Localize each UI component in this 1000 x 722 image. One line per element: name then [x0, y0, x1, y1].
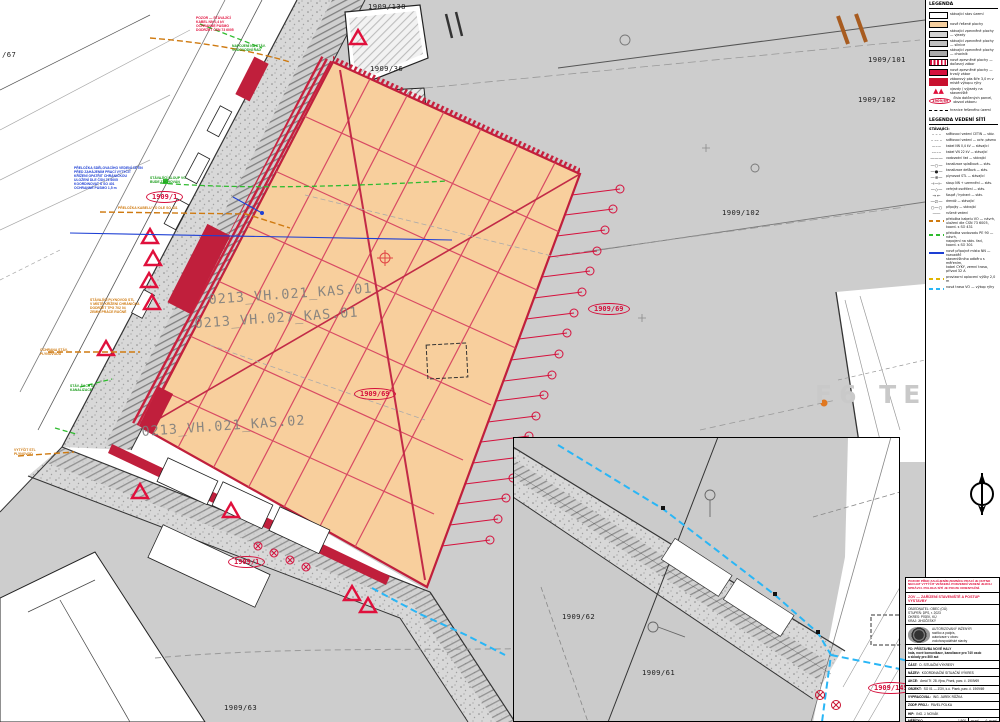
parcel-label: 1909/102: [722, 208, 760, 217]
legend-item: stávající zpevněné plochy — silnice: [929, 40, 998, 48]
annotation-orange: PŘELOŽKA KABELU VO DLE SO 431: [118, 206, 194, 210]
legend-item: nové zpevněné plochy — trvalý zábor: [929, 69, 998, 77]
title-red-heading: ZOV — ZAŘÍZENÍ STAVENIŠTĚ A POSTUP VÝSTA…: [906, 593, 999, 605]
north-arrow-icon: [957, 467, 1000, 522]
utility-row: – –– –sdělovací vedení — ochr. pásmo: [929, 138, 998, 143]
utilities-sub: STÁVAJÍCÍ:: [929, 127, 998, 131]
annotation-red: POZOR — STÁVAJÍCÍ KABEL NN 0,4 kV OCHRAN…: [196, 16, 260, 32]
inset-detail-view: [513, 437, 900, 722]
legend-item: záborový pás šíře 3,0 m v místě výkopu r…: [929, 78, 998, 86]
yellow-dash-line: [929, 278, 944, 280]
drawing-number-cell: PARÉČ. PARÉ C03: [968, 718, 999, 722]
legend-item: hranice řešeného území: [929, 107, 998, 115]
swatch-existing: [929, 12, 948, 19]
utility-row: ———vodovodní řad — stávající: [929, 156, 998, 161]
parcel-oval-label: 1909/1: [146, 191, 183, 203]
orange-dash-line: [929, 220, 944, 222]
legend-title: LEGENDA: [929, 2, 998, 9]
swatch-paved-3: [929, 50, 948, 57]
annotation-orange: STÁVAJÍCÍ PLYNOVOD STL V MÍSTĚ KŘÍŽENÍ C…: [90, 298, 182, 314]
object-description: PD: PŘÍSTAVBA NOVÉ HALY hala, nové komun…: [906, 645, 999, 661]
boundary-dash-icon: [929, 110, 948, 111]
triangles-icon: ▲▲: [929, 88, 948, 95]
legend-item: stávající zpevněné plochy — chodník: [929, 49, 998, 57]
meta-table: MĚŘÍTKO1:500 DATUM10/2023 FORMÁT8×A4 Č. …: [906, 718, 999, 722]
swatch-paved-2: [929, 40, 948, 47]
legend-item: stávající stav území: [929, 11, 998, 19]
utility-row: – – –sdělovací vedení CETIN — stáv.: [929, 132, 998, 137]
legend-colored-row: nová trasa VO — výkop rýhy: [929, 286, 998, 290]
green-dash-line: [929, 234, 944, 236]
utility-row: —⊕—plynovod STL — stávající: [929, 175, 998, 180]
cyan-dash-line: [929, 288, 944, 290]
parcel-label: 1909/63: [224, 703, 257, 712]
legend-item: nově řešené plochy: [929, 21, 998, 29]
swatch-temp-zabor: [929, 59, 948, 66]
legend-colored-row: nové přípojné místo NN — rozvaděč staven…: [929, 250, 998, 273]
oval-sample: 1909/69: [929, 98, 951, 104]
utility-row: —○—kanalizace splašková — stáv.: [929, 163, 998, 168]
utility-row: —●—kanalizace dešťová — stáv.: [929, 169, 998, 174]
meta-row: MĚŘÍTKO1:500: [906, 718, 968, 722]
tb-row: NÁZEV:KOORDINAČNÍ SITUAČNÍ VÝKRES: [906, 669, 999, 677]
utilities-legend-title: LEGENDA VEDENÍ SÍTÍ: [929, 118, 998, 125]
tb-row: VYPRACOVAL:ING. JAREK RŮŽKA: [906, 694, 999, 702]
legend-colored-row: přeložka vodovodu PE 90 — návrh, napojen…: [929, 232, 998, 248]
utility-row: ⊣—⊢sloup NN + uzemnění — stáv.: [929, 181, 998, 186]
tb-row: OBJEKT:SO 01 — ZOV, k.ú. Písek, parc. č.…: [906, 686, 999, 694]
stamp-section: AUTORIZOVANÝ INŽENÝR razítko a podpis, a…: [906, 625, 999, 645]
parcel-oval-label: 1909/1: [228, 556, 265, 568]
title-block: POZOR! PŘED ZAHÁJENÍM ZEMNÍCH PRACÍ JE N…: [905, 577, 1000, 722]
utility-row: –··–··kabel VN 22 kV — stávající: [929, 150, 998, 155]
parcel-label: 1909/101: [868, 55, 906, 64]
title-warning: POZOR! PŘED ZAHÁJENÍM ZEMNÍCH PRACÍ JE N…: [906, 578, 999, 593]
annotation-green: NAPOJENÍ NA STÁV. VODOVODNÍ ŘAD: [232, 44, 290, 52]
site-plan-canvas[interactable]: F6 TE3 0213_VH.021_KAS.01 0213_VH.027_KA…: [0, 0, 1000, 722]
utility-row: —◇—veřejné osvětlení — stáv.: [929, 187, 998, 192]
parcel-oval-label: 1909/69: [588, 303, 630, 315]
legend-colored-row: provizorní oplocení výšky 2,0 m: [929, 276, 998, 284]
parcel-oval-label: 1909/69: [354, 388, 396, 400]
swatch-strip: [929, 78, 948, 86]
utility-row: ┄┄┄rušené vedení: [929, 211, 998, 216]
legend-colored-row: přeložka kabelu VO — návrh, uložení dle …: [929, 218, 998, 230]
annotation-orange: VYTÝČIT STL PLYNOVOD: [14, 448, 70, 456]
parcel-label: 1909/138: [368, 2, 406, 11]
tb-row: HIP:ING. J. NOVÁK: [906, 710, 999, 718]
utility-row: → ←šoupě / hydrant — stáv.: [929, 193, 998, 198]
annotation-blue: PŘELOŽKA SDĚLOVACÍHO VEDENÍ CETIN PŘED Z…: [74, 166, 148, 190]
utility-row: —∅—drenáž — stávající: [929, 199, 998, 204]
parcel-label-inset: 1909/62: [562, 612, 595, 621]
parcel-label: /67: [2, 50, 16, 59]
annotation-orange: OCHRANA STÁV. PLYNOVODU: [40, 348, 96, 356]
annotation-green: STÁV. ŠACHTA KANALIZACE: [70, 384, 118, 392]
swatch-new-area: [929, 21, 948, 28]
tb-row: ČÁST:D. SITUAČNÍ VÝKRESY: [906, 661, 999, 669]
parcel-label: 1909/36: [370, 64, 403, 73]
blue-line: [929, 252, 944, 254]
authorization-stamp: [908, 627, 930, 643]
utility-row: –·–·–kabel NN 0,4 kV — stávající: [929, 144, 998, 149]
legend-item: nové zpevněné plochy — dočasný zábor: [929, 59, 998, 67]
utility-row: ○—○přípojky — stávající: [929, 205, 998, 210]
tb-row: ZODP. PROJ.:PAVEL POLKA: [906, 702, 999, 710]
title-info: OBJEDNATEL: OBEC (OÚ) STUPEŇ: DPS, r. 20…: [906, 605, 999, 625]
tb-row: AKCE:Areál Tř. 28. října, Písek, parc. č…: [906, 677, 999, 685]
legend-item: ▲▲vjezdy / výjezdy na staveniště: [929, 88, 998, 96]
parcel-label: 1909/102: [858, 95, 896, 104]
parcel-label-inset: 1909/61: [642, 668, 675, 677]
swatch-perm-zabor: [929, 69, 948, 76]
legend-item: 1909/69čísla dotčených parcel, obvod záb…: [929, 97, 998, 105]
swatch-paved-1: [929, 31, 948, 38]
legend-item: stávající zpevněné plochy — vjezdy: [929, 30, 998, 38]
annotation-green: STÁVAJÍCÍ SLOUP VO BUDE ZACHOVÁN: [150, 176, 204, 184]
